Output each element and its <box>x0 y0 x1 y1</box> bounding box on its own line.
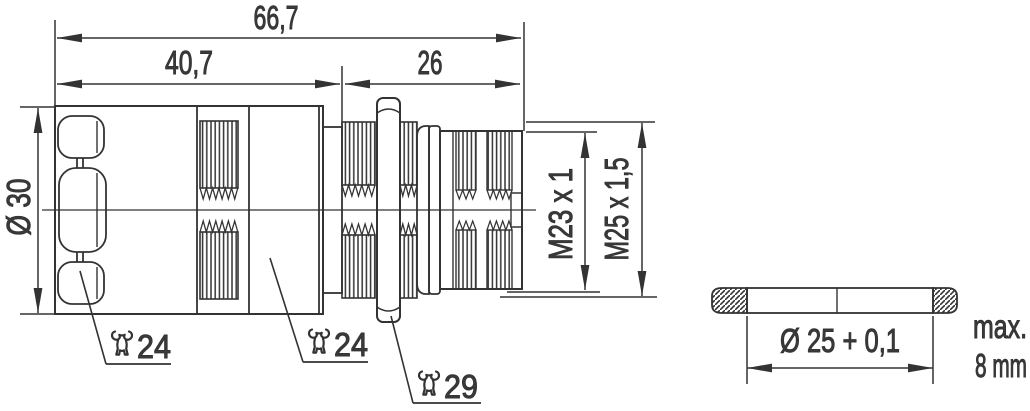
wrench-callout-grip: 24 <box>80 271 171 365</box>
wrench-grip-size: 24 <box>137 328 171 365</box>
rear-length-label: 40,7 <box>165 44 213 81</box>
wrench-nut-size: 29 <box>444 368 478 405</box>
grip-diameter-label: Ø 30 <box>0 179 37 236</box>
total-length-label: 66,7 <box>254 0 299 36</box>
front-length-label: 26 <box>418 44 443 81</box>
wrench-callout-nut: 29 <box>391 316 481 405</box>
mounting-thread-label: M25 x 1,5 <box>598 158 635 261</box>
panel-left-hatched <box>712 288 747 313</box>
panel-right-hatched <box>933 288 957 313</box>
front-thread-label: M23 x 1 <box>542 168 579 260</box>
main-view: 66,7 40,7 26 Ø 30 M23 x 1 M25 x 1,5 24 2… <box>0 0 657 405</box>
panel-middle <box>747 288 933 313</box>
wrench-icon <box>309 330 329 353</box>
dimension-lines <box>20 20 657 314</box>
panel-thickness-label: 8 mm <box>975 347 1027 384</box>
wrench-icon <box>112 332 132 355</box>
panel-cross-section-view: Ø 25 + 0,1 max. 8 mm <box>712 288 1027 384</box>
wrench-body-size: 24 <box>334 326 368 363</box>
hole-diameter-label: Ø 25 + 0,1 <box>780 322 900 359</box>
wrench-icon <box>419 372 439 395</box>
connector-dimension-drawing: 66,7 40,7 26 Ø 30 M23 x 1 M25 x 1,5 24 2… <box>0 0 1030 411</box>
technical-drawing-canvas: 66,7 40,7 26 Ø 30 M23 x 1 M25 x 1,5 24 2… <box>0 0 1030 411</box>
panel-max-label: max. <box>973 308 1027 345</box>
